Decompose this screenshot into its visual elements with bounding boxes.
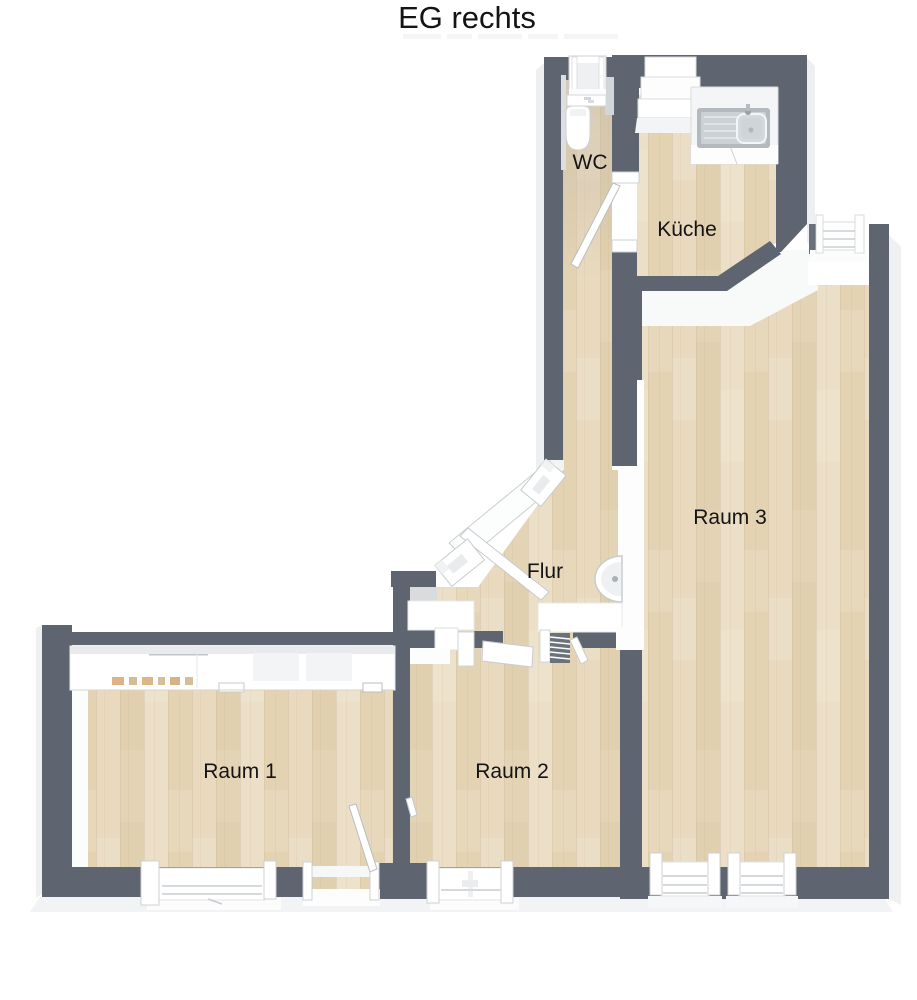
svg-text:Flur: Flur: [527, 560, 563, 583]
svg-text:EG rechts: EG rechts: [398, 0, 536, 35]
svg-text:WC: WC: [573, 151, 608, 174]
svg-text:Küche: Küche: [657, 218, 717, 241]
svg-text:Raum 1: Raum 1: [203, 760, 277, 783]
svg-text:Raum 2: Raum 2: [475, 760, 549, 783]
svg-text:Raum 3: Raum 3: [693, 506, 767, 529]
